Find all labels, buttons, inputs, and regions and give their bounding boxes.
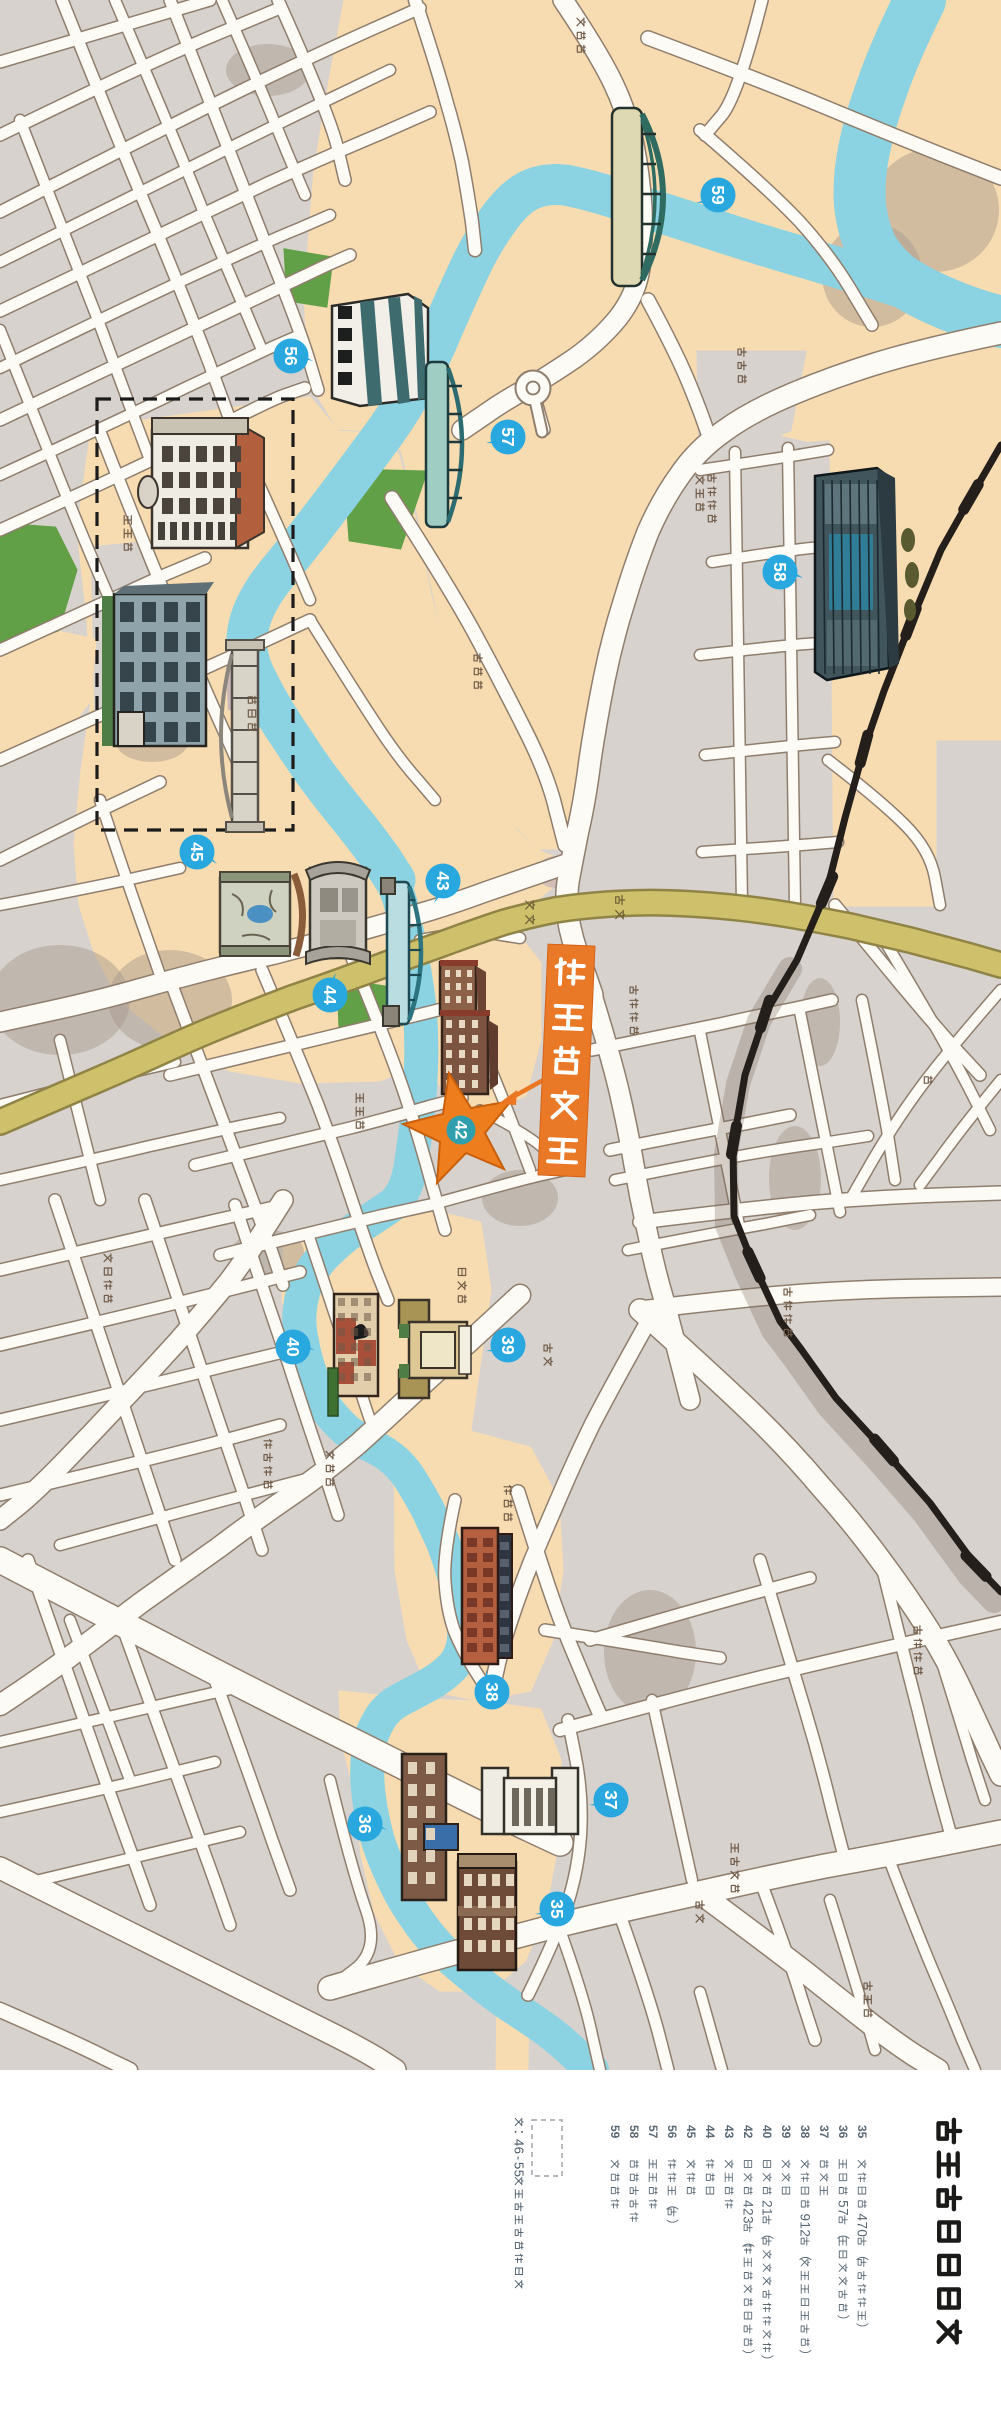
svg-text:36: 36 xyxy=(836,2125,850,2139)
svg-text:2: 2 xyxy=(741,2208,756,2215)
svg-text:35: 35 xyxy=(855,2125,869,2139)
svg-text:39: 39 xyxy=(498,1335,518,1355)
svg-text:1: 1 xyxy=(760,2208,775,2215)
svg-text:5: 5 xyxy=(512,2170,527,2177)
svg-text:）: ） xyxy=(665,2219,680,2232)
svg-text:7: 7 xyxy=(836,2208,851,2215)
svg-text:）: ） xyxy=(798,2349,813,2362)
svg-text:58: 58 xyxy=(627,2125,641,2139)
svg-text:37: 37 xyxy=(817,2125,831,2139)
svg-text:9: 9 xyxy=(798,2213,813,2220)
svg-text:45: 45 xyxy=(187,842,207,862)
svg-text:5: 5 xyxy=(512,2162,527,2169)
svg-text:6: 6 xyxy=(512,2147,527,2154)
svg-text:59: 59 xyxy=(708,185,728,205)
svg-text:37: 37 xyxy=(601,1790,621,1809)
svg-text:56: 56 xyxy=(665,2125,679,2139)
svg-text:（: （ xyxy=(798,2248,813,2261)
svg-text:57: 57 xyxy=(498,427,518,446)
svg-text:40: 40 xyxy=(283,1337,303,1357)
svg-text:（: （ xyxy=(855,2248,870,2261)
svg-text:42: 42 xyxy=(741,2125,755,2139)
svg-text:35: 35 xyxy=(547,1899,567,1919)
svg-text:0: 0 xyxy=(855,2229,870,2236)
svg-text:40: 40 xyxy=(760,2125,774,2139)
svg-text:（: （ xyxy=(760,2227,775,2240)
svg-text:59: 59 xyxy=(608,2125,622,2139)
svg-text:38: 38 xyxy=(798,2125,812,2139)
svg-text:）: ） xyxy=(760,2355,775,2368)
svg-text:2: 2 xyxy=(760,2200,775,2207)
svg-text:39: 39 xyxy=(779,2125,793,2139)
svg-text:42: 42 xyxy=(452,1121,471,1140)
svg-text:45: 45 xyxy=(684,2125,698,2139)
svg-text:44: 44 xyxy=(320,985,340,1005)
svg-text:43: 43 xyxy=(722,2125,736,2139)
svg-text:3: 3 xyxy=(741,2216,756,2223)
svg-text:）: ） xyxy=(741,2349,756,2362)
svg-text:4: 4 xyxy=(512,2139,527,2146)
svg-text:57: 57 xyxy=(646,2125,660,2139)
svg-text:-: - xyxy=(512,2156,527,2160)
svg-text:（: （ xyxy=(665,2198,680,2211)
svg-text:4: 4 xyxy=(741,2200,756,2208)
svg-text:5: 5 xyxy=(836,2200,851,2207)
svg-text:56: 56 xyxy=(281,346,301,366)
svg-text:38: 38 xyxy=(482,1682,502,1702)
svg-text:）: ） xyxy=(855,2323,870,2336)
svg-text:44: 44 xyxy=(703,2125,717,2139)
svg-text:）: ） xyxy=(836,2315,851,2328)
svg-text:7: 7 xyxy=(855,2221,870,2228)
svg-text:36: 36 xyxy=(355,1814,375,1834)
svg-text:43: 43 xyxy=(433,871,453,891)
svg-text:2: 2 xyxy=(798,2229,813,2236)
svg-text:58: 58 xyxy=(770,562,790,582)
svg-text:4: 4 xyxy=(855,2213,870,2221)
svg-text:1: 1 xyxy=(798,2221,813,2228)
